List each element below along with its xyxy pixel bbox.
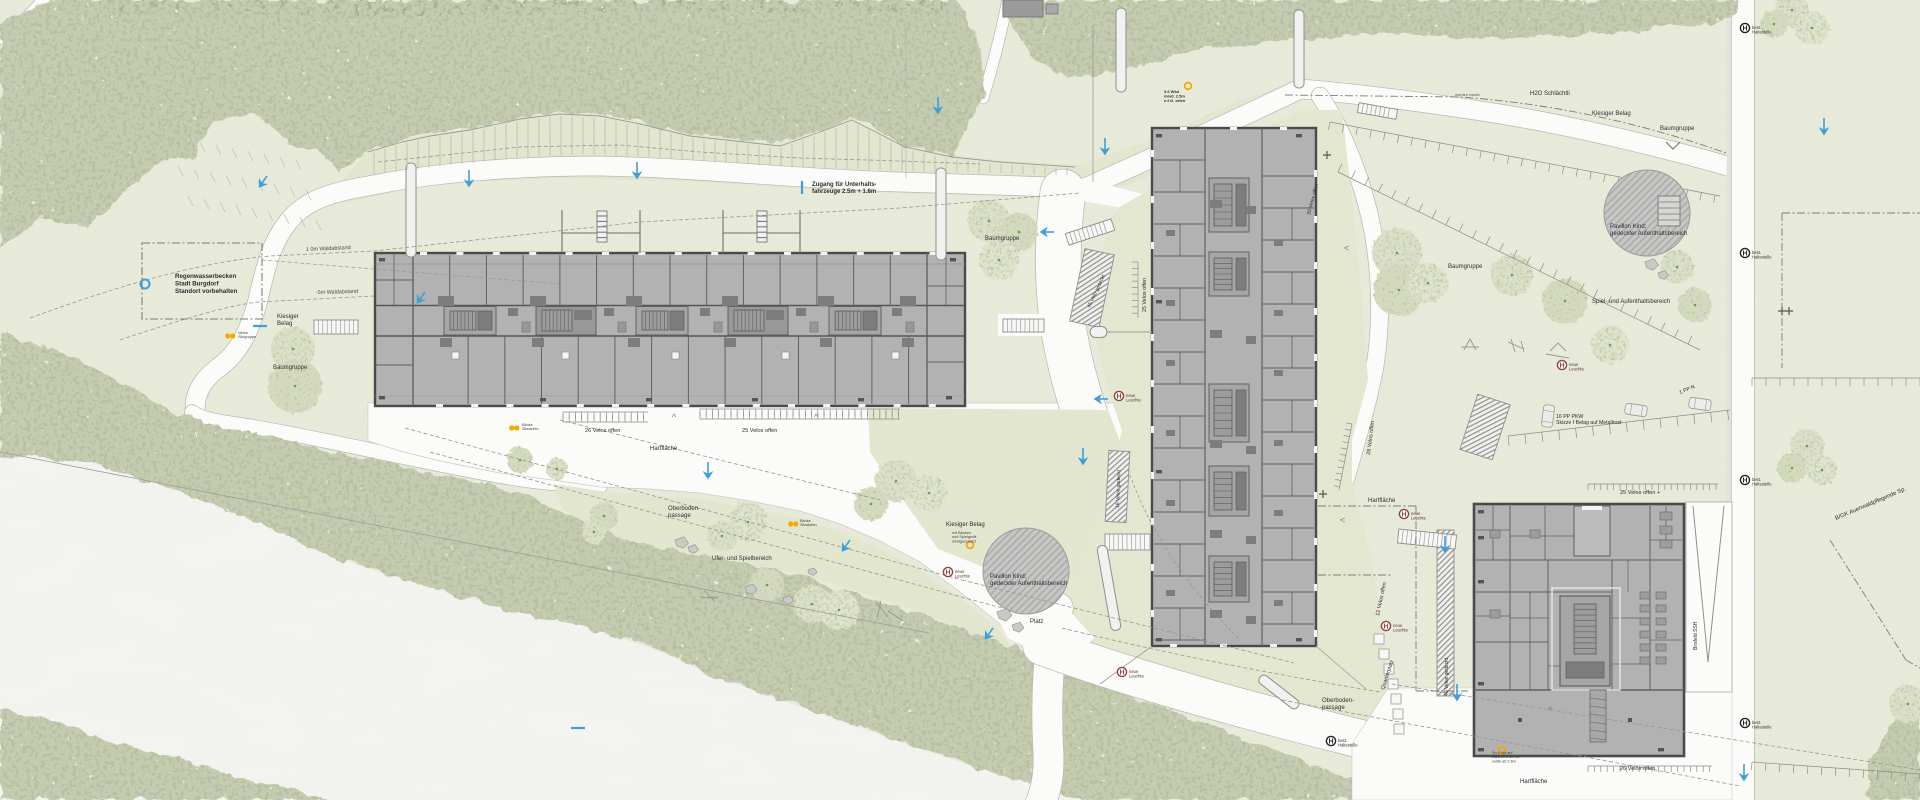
svg-text:25 Velos offen: 25 Velos offen xyxy=(742,428,777,434)
svg-text:H: H xyxy=(1559,363,1564,370)
svg-text:40 Velos gedeckt: 40 Velos gedeckt xyxy=(1444,657,1450,696)
svg-text:fahrzeuge 2.5m + 1.8m: fahrzeuge 2.5m + 1.8m xyxy=(812,189,876,195)
svg-text:H: H xyxy=(1401,512,1406,519)
svg-text:Platz: Platz xyxy=(1030,619,1043,625)
svg-text:26 Velos offen: 26 Velos offen xyxy=(1620,766,1655,772)
svg-text:Leuchte: Leuchte xyxy=(1393,628,1409,633)
svg-text:25 Velos offen +: 25 Velos offen + xyxy=(1620,490,1660,496)
svg-text:Kiesiger Belag: Kiesiger Belag xyxy=(1592,111,1631,117)
svg-text:H2O Schlächtli: H2O Schlächtli xyxy=(1530,91,1570,97)
svg-text:Birsfeld SSH: Birsfeld SSH xyxy=(1693,621,1699,650)
svg-text:Kiesiger Belag: Kiesiger Belag xyxy=(946,522,985,528)
svg-text:Pavillon Kind:: Pavillon Kind: xyxy=(1610,224,1647,230)
svg-text:Spiel- und Aufenthaltsbereich: Spiel- und Aufenthaltsbereich xyxy=(1592,299,1670,305)
svg-text:n.f.G. orten: n.f.G. orten xyxy=(1164,98,1186,103)
svg-text:-5m Waldabstand: -5m Waldabstand xyxy=(316,289,358,296)
svg-text:Hartfläche: Hartfläche xyxy=(1520,779,1548,785)
svg-text:Leuchte: Leuchte xyxy=(955,574,971,579)
svg-text:H: H xyxy=(945,570,950,577)
svg-text:H: H xyxy=(1328,739,1333,746)
svg-text:H: H xyxy=(1116,394,1121,401)
svg-text:H: H xyxy=(1383,624,1388,631)
svg-text:Zugang für Unterhalts-: Zugang für Unterhalts- xyxy=(812,182,877,188)
svg-text:Leuchte: Leuchte xyxy=(1129,674,1145,679)
svg-text:Oberboden-: Oberboden- xyxy=(668,506,700,512)
svg-text:26 Velos offen: 26 Velos offen xyxy=(585,428,620,434)
svg-text:Kiesiger: Kiesiger xyxy=(277,314,299,320)
svg-text:Sitzstufen: Sitzstufen xyxy=(522,427,539,431)
svg-text:Belag: Belag xyxy=(277,321,292,327)
svg-text:H: H xyxy=(1742,251,1747,258)
svg-text:H: H xyxy=(1742,478,1747,485)
svg-text:<: < xyxy=(1340,515,1345,525)
svg-text:Baumgruppe: Baumgruppe xyxy=(1660,126,1695,132)
svg-text:Pavillon Kind:: Pavillon Kind: xyxy=(990,574,1027,580)
svg-text:<: < xyxy=(1344,243,1349,253)
svg-text:Sitzstufen: Sitzstufen xyxy=(800,523,817,527)
svg-text:passage: passage xyxy=(1322,705,1345,711)
svg-text:passage: passage xyxy=(668,513,691,519)
svg-text:Stadt Burgdorf: Stadt Burgdorf xyxy=(175,280,220,287)
svg-text:Haltestelle: Haltestelle xyxy=(1338,743,1358,748)
svg-text:25 Velos offen: 25 Velos offen xyxy=(1142,278,1148,312)
svg-text:windgeschützt: windgeschützt xyxy=(952,539,977,543)
svg-text:Haltestelle: Haltestelle xyxy=(1752,725,1772,730)
svg-text:Leuchte: Leuchte xyxy=(1126,398,1142,403)
svg-text:Oberboden-: Oberboden- xyxy=(1322,698,1354,704)
svg-text:Standort vorbehalten: Standort vorbehalten xyxy=(175,288,237,295)
svg-text:Leuchte: Leuchte xyxy=(1411,516,1427,521)
svg-text:H: H xyxy=(1742,721,1747,728)
svg-text:gedeckter Aufenthaltsbereich: gedeckter Aufenthaltsbereich xyxy=(990,581,1067,587)
svg-text:Sitzgruppe: Sitzgruppe xyxy=(238,335,256,339)
svg-text:Baumgruppe: Baumgruppe xyxy=(985,236,1020,242)
svg-text:vertik ab 2.6m: vertik ab 2.6m xyxy=(1492,759,1516,763)
svg-text:Regenwasserbecken: Regenwasserbecken xyxy=(175,273,236,280)
svg-text:Baumgruppe: Baumgruppe xyxy=(273,365,308,371)
svg-text:H: H xyxy=(1742,26,1747,33)
svg-text:Hartfläche: Hartfläche xyxy=(650,446,678,452)
svg-text:H: H xyxy=(1119,670,1124,677)
svg-text:Ufer- und Spielbereich: Ufer- und Spielbereich xyxy=(712,556,772,562)
svg-text:gedeckter Aufenthaltsbereich: gedeckter Aufenthaltsbereich xyxy=(1610,231,1687,237)
svg-text:Haltestelle: Haltestelle xyxy=(1752,255,1772,260)
svg-text:Haltestelle: Haltestelle xyxy=(1752,30,1772,35)
svg-text:Skizze f Belag auf Metallrost: Skizze f Belag auf Metallrost xyxy=(1556,420,1622,426)
svg-text:Hartfläche: Hartfläche xyxy=(1368,498,1396,504)
svg-text:werden backe: werden backe xyxy=(1455,92,1481,97)
svg-text:Leuchte: Leuchte xyxy=(1569,367,1585,372)
svg-text:Baumgruppe: Baumgruppe xyxy=(1448,264,1483,270)
svg-text:Haltestelle: Haltestelle xyxy=(1752,482,1772,487)
